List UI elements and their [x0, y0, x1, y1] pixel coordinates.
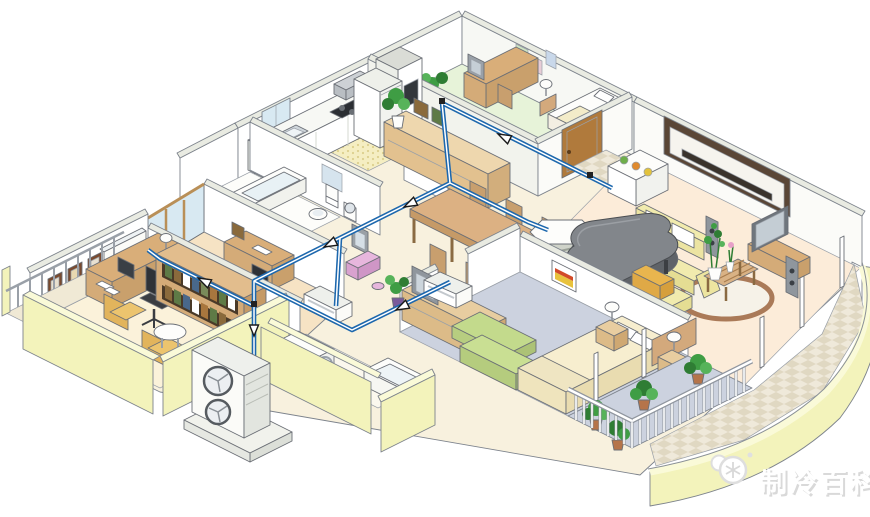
watermark-text: 制冷百科	[760, 468, 870, 499]
isometric-house-scene: 制冷百科 制冷百科	[0, 0, 870, 517]
bed-lamp	[540, 80, 552, 89]
illustration-stage: 制冷百科 制冷百科	[0, 0, 870, 517]
desk-lamp	[160, 234, 172, 243]
round-table	[154, 324, 186, 340]
